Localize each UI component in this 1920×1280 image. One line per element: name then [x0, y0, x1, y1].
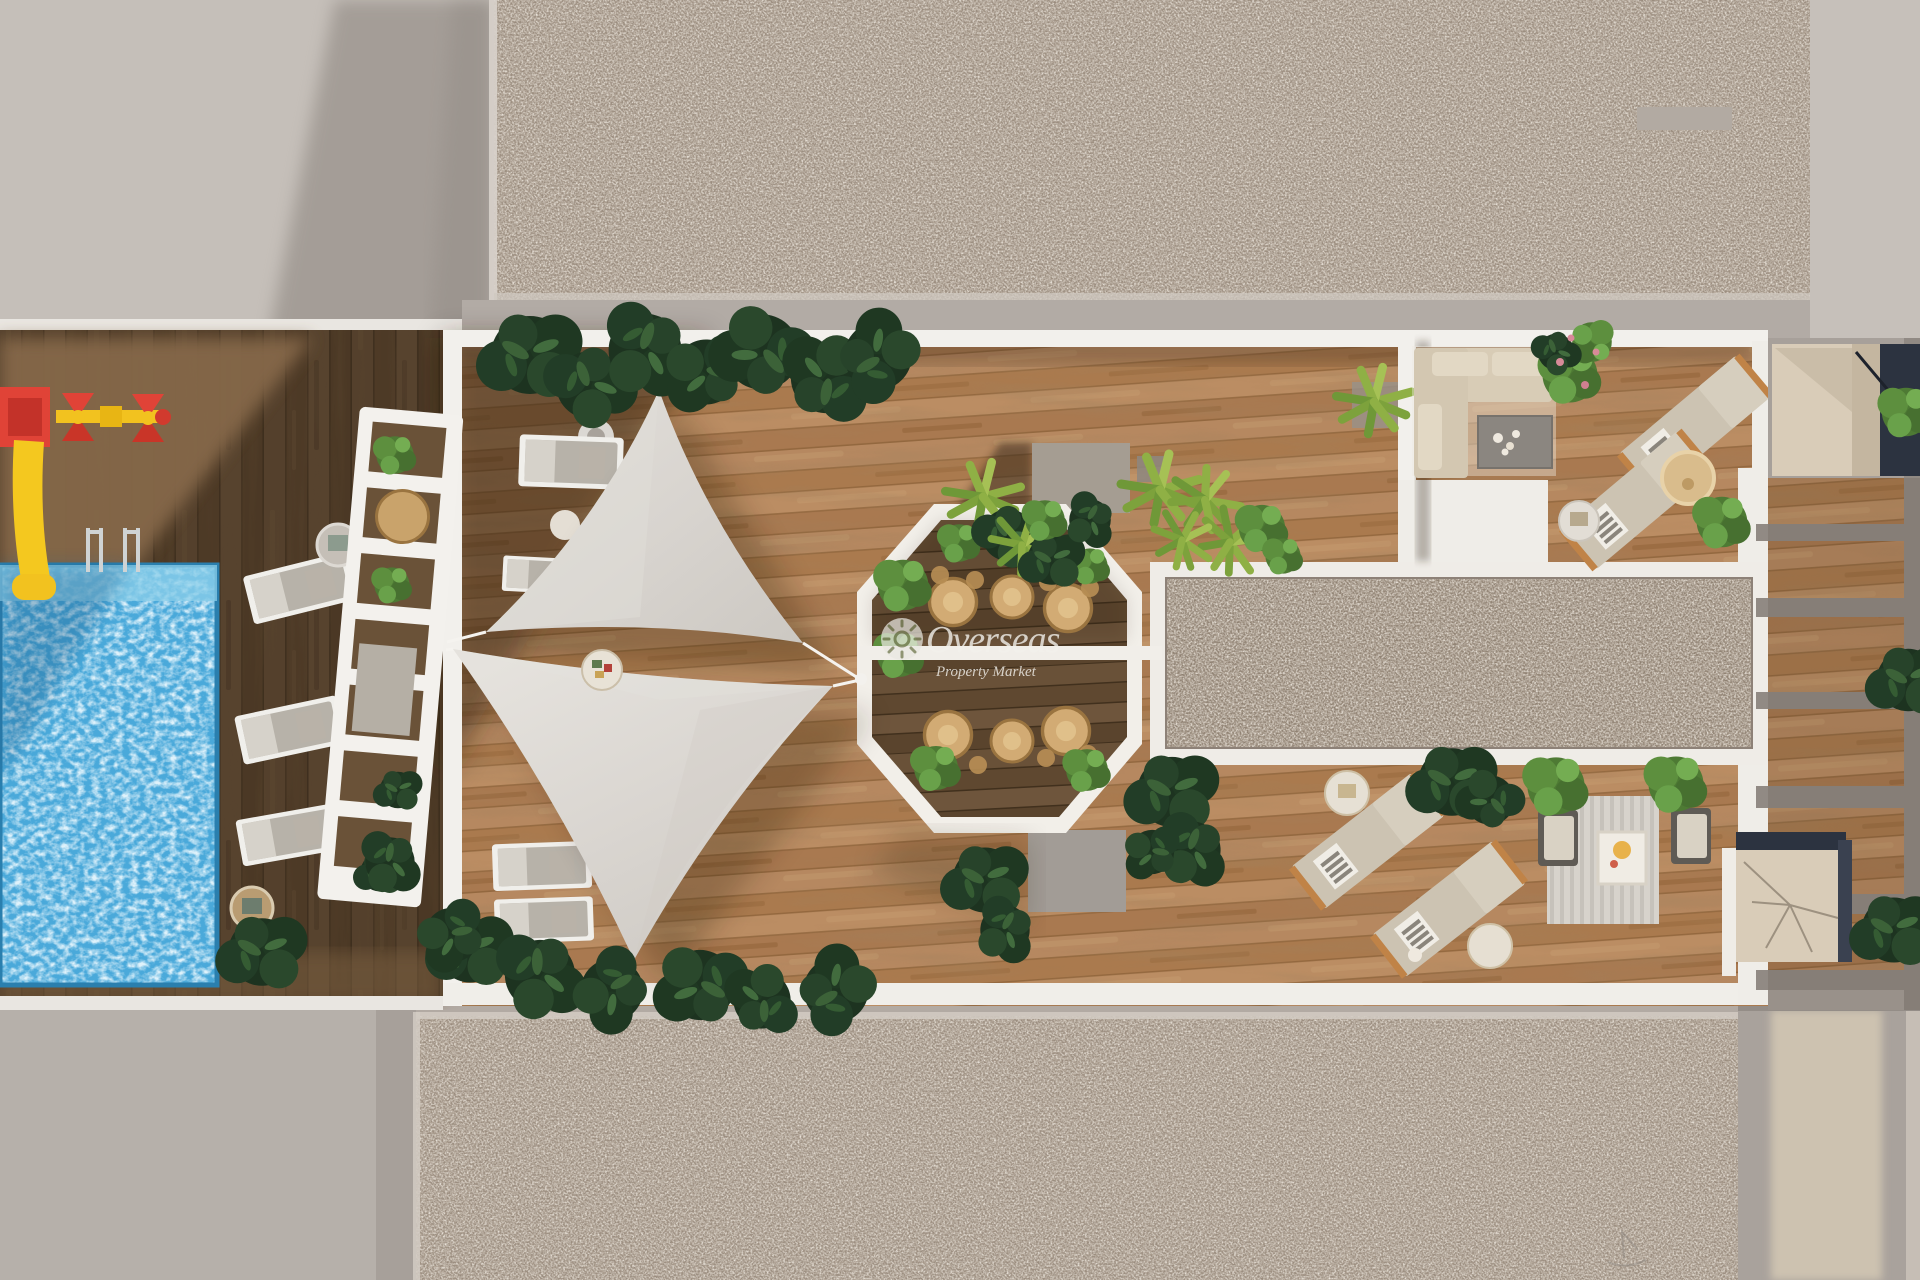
svg-text:Property Market: Property Market [935, 664, 1037, 680]
svg-text:Overseas: Overseas [926, 619, 1060, 661]
